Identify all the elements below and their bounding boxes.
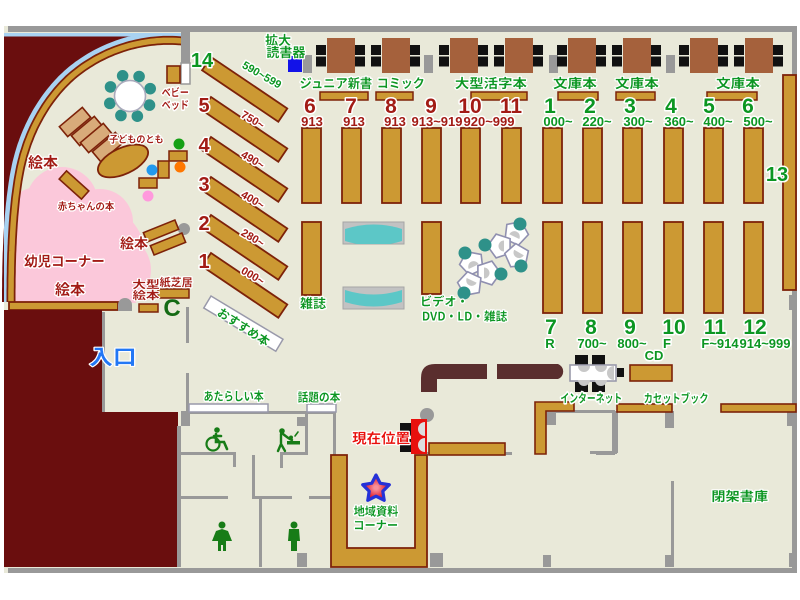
svg-text:2: 2 [198, 213, 209, 235]
svg-text:913: 913 [384, 114, 406, 129]
svg-text:3: 3 [198, 174, 209, 196]
svg-text:C: C [163, 295, 180, 322]
svg-text:920~999: 920~999 [464, 114, 515, 129]
svg-text:F: F [663, 336, 671, 351]
svg-text:000~: 000~ [543, 114, 573, 129]
svg-text:913: 913 [301, 114, 323, 129]
svg-text:13: 13 [766, 164, 788, 186]
svg-text:5: 5 [198, 95, 209, 117]
svg-text:F~914: F~914 [701, 336, 739, 351]
svg-text:913: 913 [343, 114, 365, 129]
svg-text:CD: CD [645, 348, 664, 363]
svg-text:400~: 400~ [703, 114, 733, 129]
svg-text:500~: 500~ [743, 114, 773, 129]
svg-text:700~: 700~ [577, 336, 607, 351]
svg-text:800~: 800~ [617, 336, 647, 351]
svg-text:14: 14 [191, 50, 214, 72]
svg-text:R: R [545, 336, 555, 351]
svg-text:300~: 300~ [623, 114, 653, 129]
svg-text:4: 4 [198, 135, 210, 157]
svg-text:360~: 360~ [664, 114, 694, 129]
svg-text:913~919: 913~919 [412, 114, 463, 129]
svg-text:220~: 220~ [582, 114, 612, 129]
svg-text:1: 1 [198, 251, 209, 273]
svg-text:914~999: 914~999 [740, 336, 791, 351]
